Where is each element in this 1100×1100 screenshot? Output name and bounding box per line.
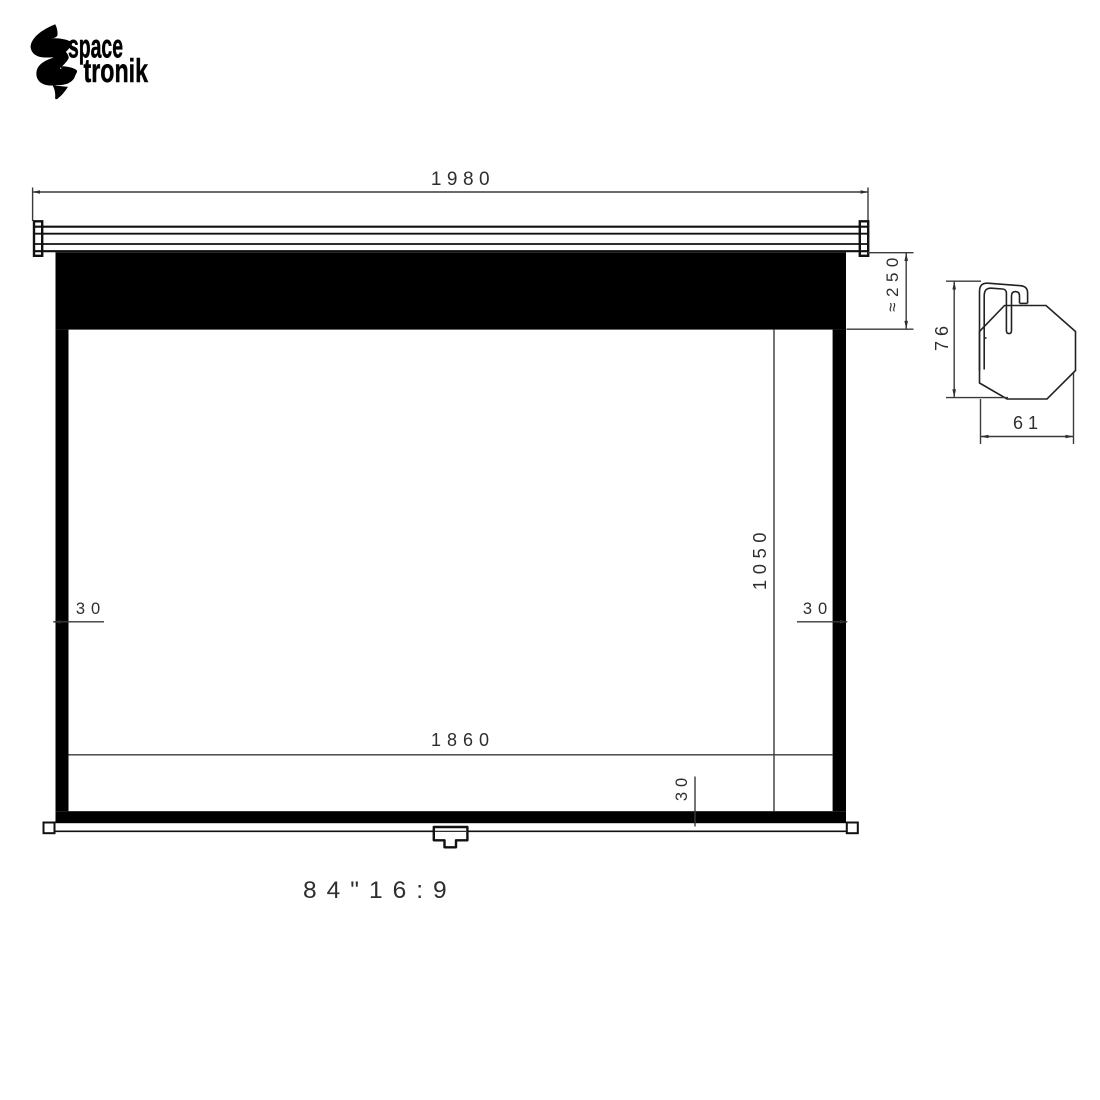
svg-text:1860: 1860: [431, 730, 495, 750]
svg-text:tronik: tronik: [84, 52, 149, 89]
svg-text:1050: 1050: [749, 527, 770, 590]
svg-text:76: 76: [932, 321, 952, 351]
svg-text:30: 30: [76, 600, 106, 618]
svg-text:30: 30: [803, 600, 833, 618]
svg-text:≈250: ≈250: [883, 252, 902, 312]
svg-text:1980: 1980: [431, 169, 495, 190]
svg-text:84"16:9: 84"16:9: [303, 877, 457, 904]
svg-text:61: 61: [1013, 413, 1043, 433]
svg-text:30: 30: [673, 773, 691, 801]
